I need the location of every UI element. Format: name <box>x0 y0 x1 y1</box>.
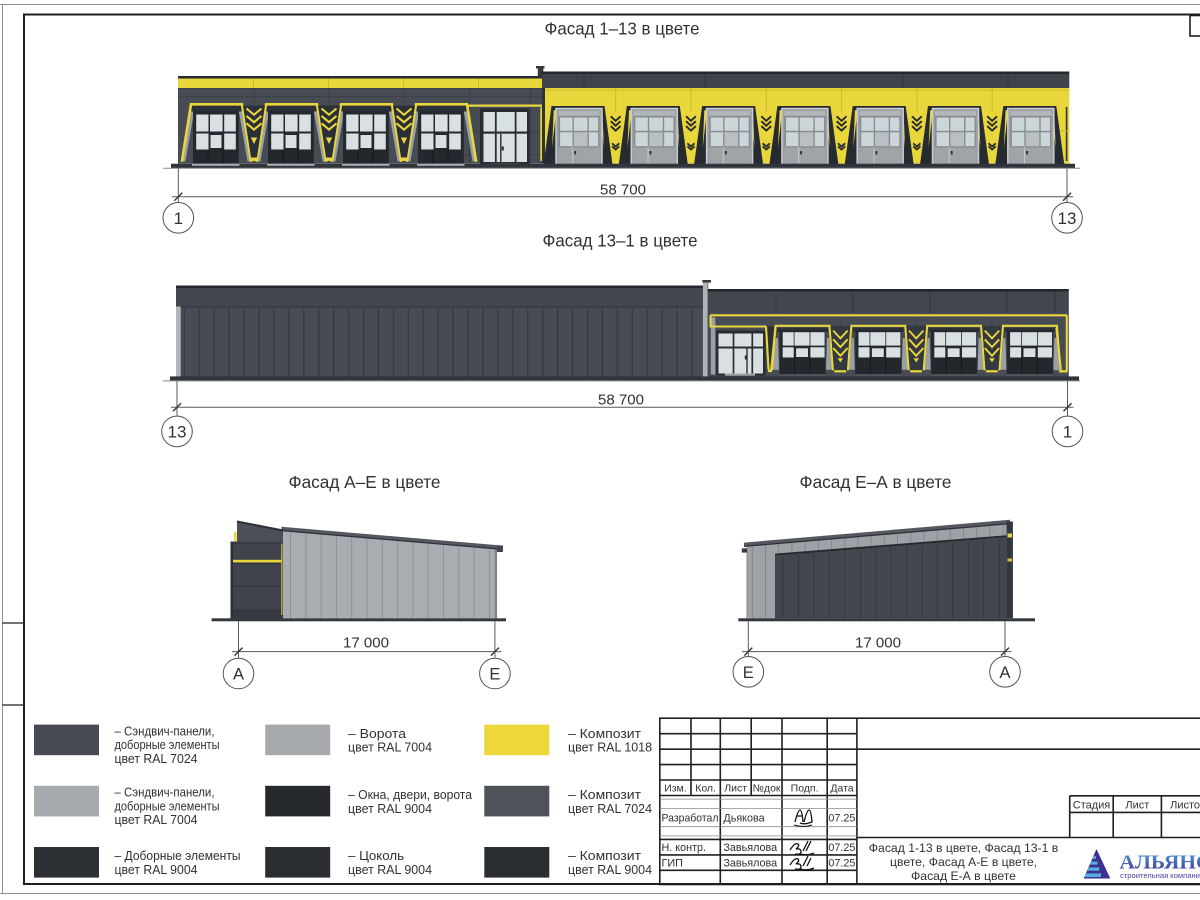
svg-text:цвет RAL 9004: цвет RAL 9004 <box>348 801 432 816</box>
svg-text:цвет RAL 9004: цвет RAL 9004 <box>348 862 432 877</box>
svg-text:– Композит: – Композит <box>568 848 641 863</box>
svg-text:Завьялова: Завьялова <box>723 857 777 869</box>
svg-text:Завьялова: Завьялова <box>723 842 777 854</box>
svg-text:цвет RAL 7004: цвет RAL 7004 <box>115 812 198 827</box>
svg-text:цвет RAL 1018: цвет RAL 1018 <box>568 740 652 755</box>
svg-text:Дьякова: Дьякова <box>723 812 764 824</box>
svg-text:А: А <box>233 666 244 684</box>
svg-text:цвет RAL 7024: цвет RAL 7024 <box>115 751 198 766</box>
svg-text:Н. контр.: Н. контр. <box>662 842 707 854</box>
svg-text:цвет RAL 7004: цвет RAL 7004 <box>348 740 432 755</box>
svg-text:Кол.: Кол. <box>695 783 716 795</box>
svg-text:Подп.: Подп. <box>791 783 819 795</box>
svg-text:07.25: 07.25 <box>828 842 855 854</box>
svg-text:58 700: 58 700 <box>600 183 646 199</box>
svg-text:цвет RAL 9004: цвет RAL 9004 <box>568 862 652 877</box>
svg-text:Разработал: Разработал <box>662 812 719 824</box>
svg-text:07.25: 07.25 <box>828 857 855 869</box>
svg-text:доборные элементы: доборные элементы <box>115 737 220 752</box>
svg-text:ГИП: ГИП <box>662 857 683 869</box>
svg-text:Дата: Дата <box>830 783 853 795</box>
svg-text:Фасад 13–1 в цвете: Фасад 13–1 в цвете <box>543 231 698 251</box>
svg-text:– Композит: – Композит <box>568 726 641 741</box>
svg-text:цвет RAL 7024: цвет RAL 7024 <box>568 801 652 816</box>
svg-text:– Цоколь: – Цоколь <box>348 848 404 863</box>
svg-text:– Композит: – Композит <box>568 787 641 802</box>
svg-text:Фасад А–Е в цвете: Фасад А–Е в цвете <box>289 472 441 492</box>
svg-text:Лист: Лист <box>1125 800 1149 812</box>
svg-text:1: 1 <box>174 209 183 228</box>
svg-text:Лист: Лист <box>724 783 747 795</box>
svg-text:№док: №док <box>753 783 781 795</box>
svg-text:Фасад Е-А в цвете: Фасад Е-А в цвете <box>911 869 1016 883</box>
svg-text:Фасад Е–А в цвете: Фасад Е–А в цвете <box>800 472 952 492</box>
svg-text:17 000: 17 000 <box>343 635 389 651</box>
svg-text:17 000: 17 000 <box>855 635 901 651</box>
svg-text:Стадия: Стадия <box>1073 800 1111 812</box>
svg-text:13: 13 <box>168 423 187 442</box>
svg-text:цвет RAL 9004: цвет RAL 9004 <box>115 862 198 877</box>
svg-text:Фасад 1-13 в цвете, Фасад 13-1: Фасад 1-13 в цвете, Фасад 13-1 в <box>869 841 1058 855</box>
svg-text:Фасад 1–13 в цвете: Фасад 1–13 в цвете <box>545 19 700 39</box>
svg-text:– Сэндвич-панели,: – Сэндвич-панели, <box>115 723 215 738</box>
svg-text:доборные элементы: доборные элементы <box>115 798 220 813</box>
svg-text:– Ворота: – Ворота <box>348 726 407 741</box>
svg-text:58 700: 58 700 <box>598 393 644 409</box>
svg-text:Е: Е <box>743 664 754 682</box>
svg-text:– Сэндвич-панели,: – Сэндвич-панели, <box>115 785 215 800</box>
svg-text:13: 13 <box>1058 209 1077 228</box>
svg-text:– Доборные элементы: – Доборные элементы <box>115 848 241 863</box>
svg-text:цвете, Фасад А-Е в цвете,: цвете, Фасад А-Е в цвете, <box>890 855 1037 869</box>
svg-text:07.25: 07.25 <box>828 812 855 824</box>
svg-text:Листов: Листов <box>1170 800 1200 812</box>
svg-text:строительная компания: строительная компания <box>1120 871 1200 880</box>
svg-text:– Окна, двери, ворота: – Окна, двери, ворота <box>348 787 473 802</box>
svg-text:А: А <box>999 664 1010 682</box>
svg-text:1: 1 <box>1063 423 1072 442</box>
svg-text:Е: Е <box>489 666 500 684</box>
svg-text:Изм.: Изм. <box>664 783 687 795</box>
